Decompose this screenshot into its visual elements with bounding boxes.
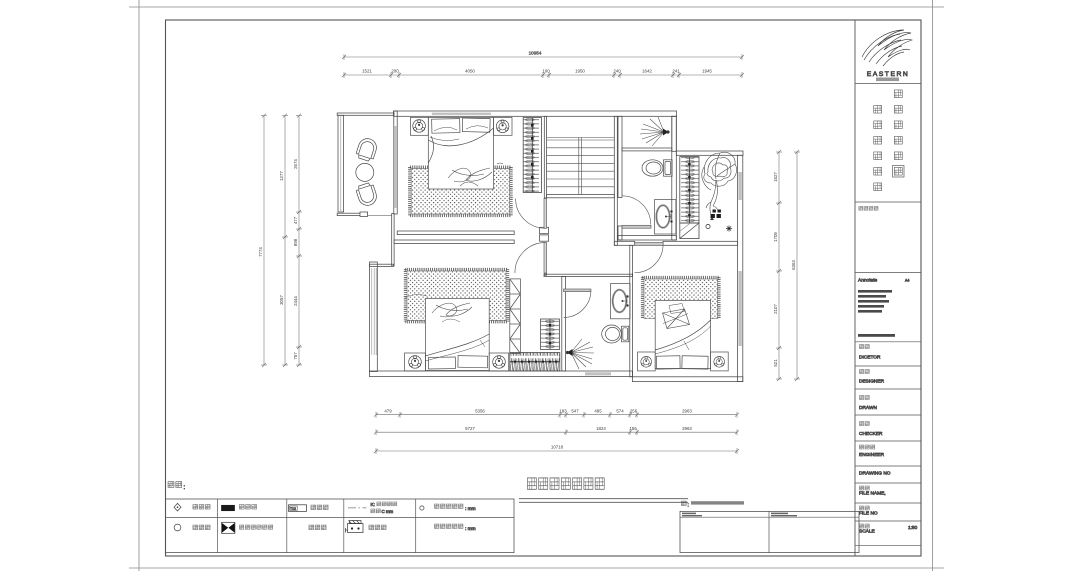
svg-text:ENGINEER: ENGINEER [859, 452, 885, 458]
svg-text:1527: 1527 [773, 172, 778, 182]
svg-text:479: 479 [384, 408, 392, 413]
svg-text:EASTERN: EASTERN [867, 71, 910, 78]
svg-text:DESIGNER: DESIGNER [859, 379, 885, 385]
svg-text:FILE NAME,: FILE NAME, [859, 491, 886, 497]
svg-text:898: 898 [293, 238, 298, 246]
svg-text:100: 100 [542, 69, 550, 74]
svg-text:FILE NO: FILE NO [859, 511, 878, 517]
svg-text:1950: 1950 [575, 69, 585, 74]
svg-text:521: 521 [773, 359, 778, 367]
svg-text:SCALE: SCALE [859, 529, 875, 535]
svg-text:495: 495 [594, 408, 602, 413]
svg-text:547: 547 [571, 408, 579, 413]
svg-text::: : [688, 503, 689, 509]
svg-text:DICETOR: DICETOR [859, 355, 881, 361]
svg-text:574: 574 [616, 408, 624, 413]
svg-text:2107: 2107 [773, 304, 778, 314]
svg-text:156: 156 [629, 426, 637, 431]
svg-text:DRAWN: DRAWN [859, 405, 877, 411]
svg-text::: : [184, 485, 186, 491]
svg-text:C mm: C mm [382, 509, 394, 514]
svg-text:: mm: : mm [465, 527, 476, 532]
svg-text:241: 241 [672, 69, 680, 74]
svg-text:1945: 1945 [702, 69, 712, 74]
svg-text:3057: 3057 [279, 295, 284, 305]
svg-text:10954: 10954 [529, 51, 542, 56]
svg-text:2963: 2963 [682, 426, 692, 431]
svg-text:1521: 1521 [362, 69, 372, 74]
svg-text:1708: 1708 [773, 232, 778, 242]
svg-text:2444: 2444 [293, 296, 298, 306]
svg-text:4050: 4050 [465, 69, 475, 74]
svg-text:256: 256 [630, 408, 638, 413]
svg-text:6363: 6363 [791, 260, 796, 270]
svg-text:1277: 1277 [279, 171, 284, 181]
svg-text:10718: 10718 [551, 445, 564, 450]
svg-text:K:: K: [371, 502, 375, 507]
svg-text:757: 757 [293, 352, 298, 360]
svg-text:CHECKER: CHECKER [859, 431, 883, 437]
svg-text:1642: 1642 [642, 69, 652, 74]
svg-text:183: 183 [559, 408, 567, 413]
svg-text:T12: T12 [290, 507, 296, 511]
svg-text:: mm: : mm [465, 507, 476, 512]
svg-text:5727: 5727 [465, 426, 475, 431]
svg-text:1824: 1824 [596, 426, 606, 431]
svg-text:240: 240 [613, 69, 621, 74]
svg-text:2963: 2963 [682, 408, 692, 413]
svg-text:5356: 5356 [475, 408, 485, 413]
svg-text:1:50: 1:50 [908, 525, 918, 531]
svg-text:477: 477 [293, 216, 298, 224]
svg-text:2674: 2674 [293, 159, 298, 169]
svg-text:Annotate: Annotate [858, 278, 878, 284]
svg-text:A4: A4 [905, 279, 909, 283]
svg-text:200: 200 [391, 69, 399, 74]
svg-text:7774: 7774 [258, 247, 263, 257]
svg-text:DRAWING NO: DRAWING NO [859, 471, 891, 477]
